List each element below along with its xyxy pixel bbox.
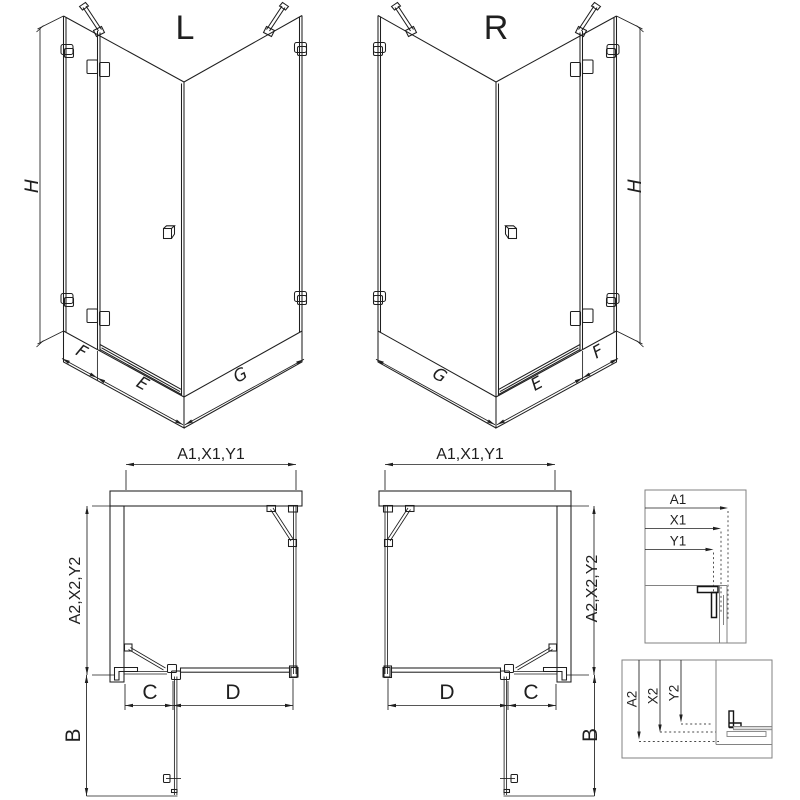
detail-depth-label-y2: Y2 (667, 685, 682, 702)
wall-hatch-left-plan (110, 491, 302, 682)
side-width-label-left: G (230, 364, 251, 388)
door-width-label-right: E (528, 373, 547, 396)
height-label-left: H (21, 179, 43, 193)
plan-door-dim-left: D (225, 681, 240, 704)
wall-profile-section-bottom (727, 711, 772, 737)
plan-geometry-left (85, 463, 298, 796)
plan-view-right: A1,X1,Y1 A2,X2,Y2 D C B (379, 446, 602, 796)
plan-panel-dim-left: C (142, 681, 157, 704)
wall-hatch-right-plan (379, 491, 571, 682)
panel-width-label-right: F (589, 341, 607, 363)
plan-geometry-right (383, 463, 596, 796)
drawing-canvas: L H F E G R H G E F A1,X1,Y1 A2,X2,Y2 C … (0, 0, 800, 800)
side-width-label-right: G (429, 364, 450, 388)
wall-profile-section-top (698, 586, 728, 643)
plan-swing-dim-left: B (62, 728, 85, 742)
detail-box-width-frame (645, 490, 746, 643)
detail-width-label-x1: X1 (670, 513, 687, 528)
detail-depth-label-x2: X2 (646, 688, 661, 705)
plan-width-dim-left: A1,X1,Y1 (177, 446, 245, 463)
plan-depth-dim-right: A2,X2,Y2 (584, 555, 601, 623)
plan-width-dim-right: A1,X1,Y1 (436, 446, 504, 463)
plan-swing-dim-right: B (579, 728, 602, 742)
detail-width-label-y1: Y1 (670, 534, 687, 549)
detail-box-depth-frame (622, 660, 772, 758)
shower-enclosure-technical-drawing: L H F E G R H G E F A1,X1,Y1 A2,X2,Y2 C … (0, 0, 800, 800)
height-label-right: H (624, 179, 646, 193)
plan-panel-dim-right: C (523, 681, 538, 704)
plan-depth-dim-left: A2,X2,Y2 (67, 557, 84, 625)
variant-title-left: L (176, 9, 195, 47)
detail-box-width: A1 X1 Y1 (645, 490, 746, 643)
variant-title-right: R (484, 9, 509, 47)
panel-width-label-left: F (72, 341, 90, 363)
detail-width-label-a1: A1 (670, 492, 687, 507)
plan-door-dim-right: D (439, 681, 454, 704)
iso-view-left: L H F E G (21, 3, 307, 429)
detail-depth-label-a2: A2 (625, 691, 640, 708)
enclosure-geometry-left (37, 3, 307, 429)
plan-view-left: A1,X1,Y1 A2,X2,Y2 C D B (62, 446, 302, 796)
door-width-label-left: E (133, 373, 152, 396)
width-reference-arrows (645, 506, 728, 551)
enclosure-geometry-right (374, 3, 644, 429)
detail-box-depth: A2 X2 Y2 (622, 660, 772, 758)
iso-view-right: R H G E F (374, 3, 647, 429)
